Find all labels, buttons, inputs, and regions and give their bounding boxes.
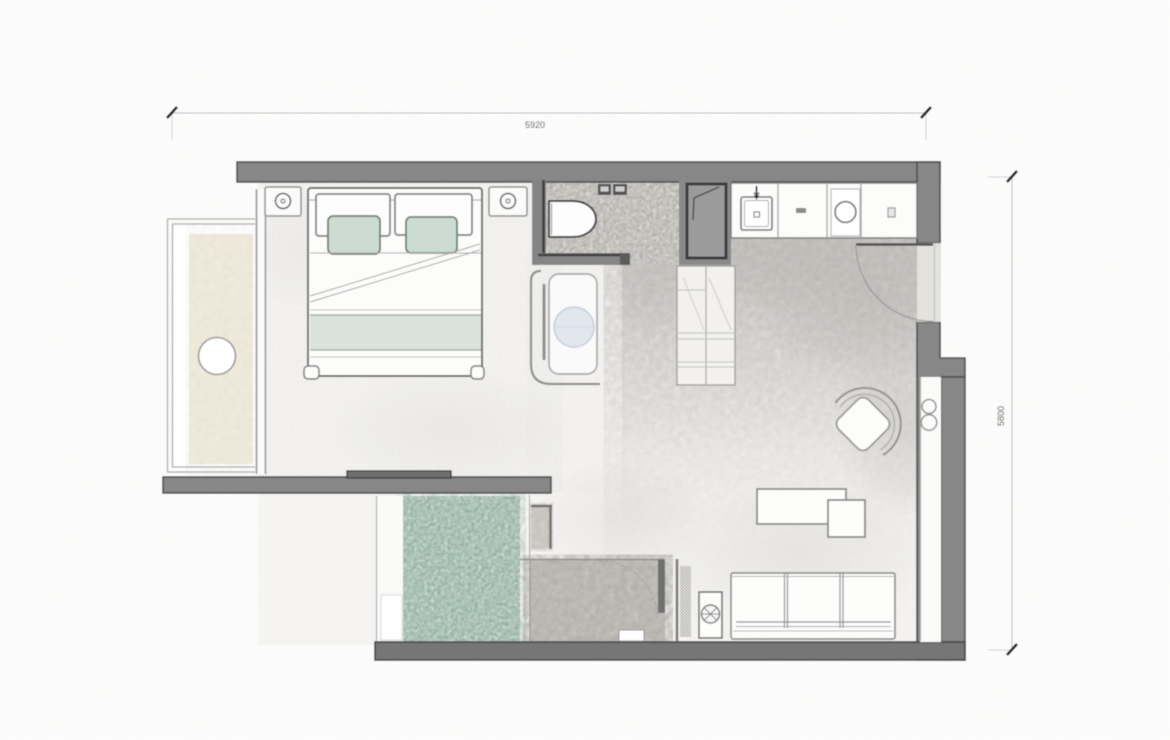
svg-text:5920: 5920 bbox=[525, 120, 545, 130]
svg-text:5800: 5800 bbox=[996, 406, 1006, 426]
